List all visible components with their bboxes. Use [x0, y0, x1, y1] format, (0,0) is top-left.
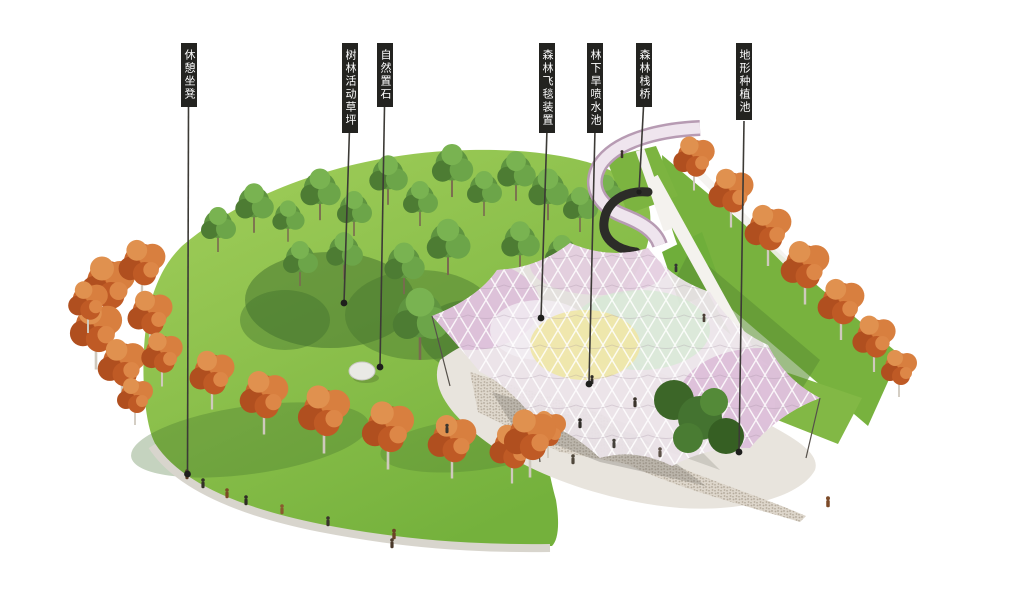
label-forest-activity-lawn: 树林活动草坪: [342, 43, 358, 133]
label-forest-flying-carpet: 森林飞毯装置: [539, 43, 555, 133]
label-rest-bench: 休憩坐凳: [181, 43, 197, 107]
landscape-rendering-figure: 休憩坐凳 树林活动草坪 自然置石 森林飞毯装置 林下旱喷水池 森林栈桥 地形种植…: [0, 0, 1022, 592]
park-rendering: [0, 0, 1022, 592]
label-terrain-planting-pool: 地形种植池: [736, 43, 752, 120]
label-understory-dry-fountain: 林下旱喷水池: [587, 43, 603, 133]
label-forest-boardwalk: 森林栈桥: [636, 43, 652, 107]
label-natural-stone: 自然置石: [377, 43, 393, 107]
